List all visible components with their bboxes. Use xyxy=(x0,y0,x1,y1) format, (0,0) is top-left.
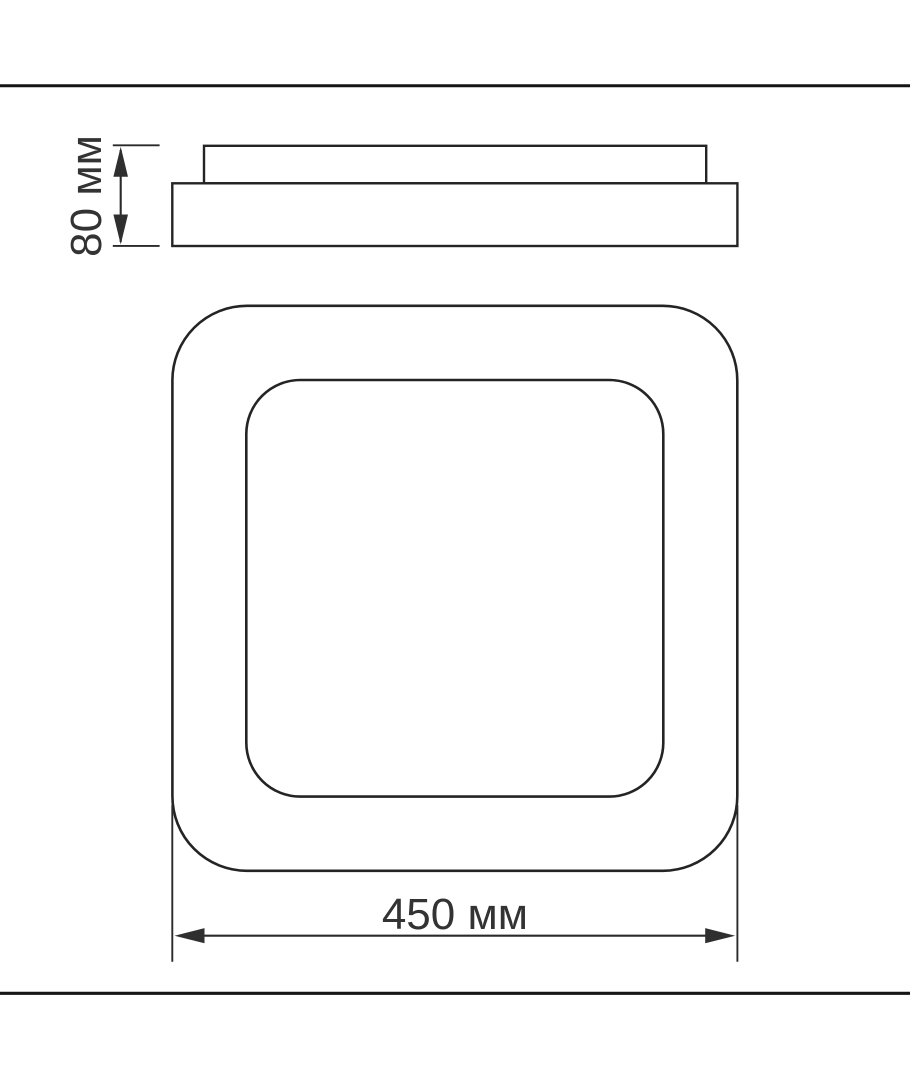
svg-text:80 мм: 80 мм xyxy=(62,135,111,257)
svg-text:450 мм: 450 мм xyxy=(382,890,528,939)
